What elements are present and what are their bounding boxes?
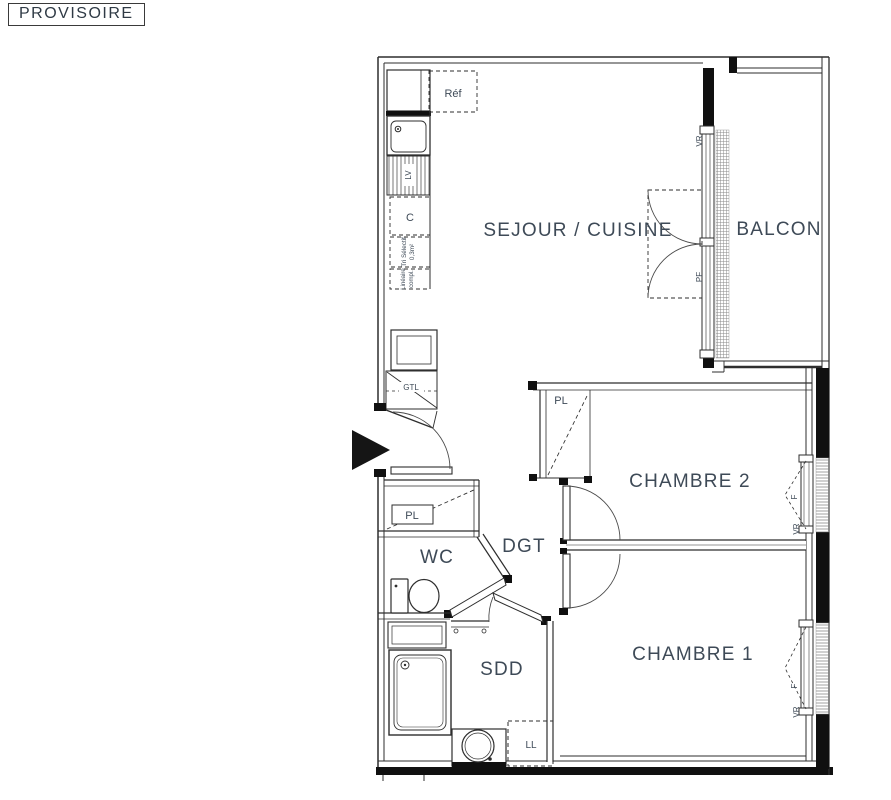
hallway-partitions: PL [528, 381, 812, 615]
toilet-tank [391, 579, 408, 613]
chambre2-door-leaf [563, 486, 570, 540]
chambre2-shutter-label: VR [792, 523, 801, 534]
entrance-arrow [352, 430, 390, 470]
washing-machine-label: LL [525, 740, 537, 751]
waste-sorting-label-2: 0,3m² [409, 244, 416, 260]
room-label-chambre1: CHAMBRE 1 [632, 644, 754, 665]
room-label-chambre2: CHAMBRE 2 [629, 471, 751, 492]
toilet-bowl [409, 580, 439, 613]
chambre2-window: F VR [785, 455, 813, 535]
room-labels: SEJOUR / CUISINE BALCON CHAMBRE 2 CHAMBR… [420, 219, 822, 680]
chambre1-shutter-label: VR [792, 706, 801, 717]
chambre1-door-leaf [563, 554, 570, 608]
room-label-dgt: DGT [502, 536, 546, 557]
sejour-shutter-label: VR [695, 135, 704, 146]
sejour-french-window: VR PF [648, 68, 729, 368]
room-label-wc: WC [420, 547, 454, 568]
entrance-door-leaf [391, 467, 452, 474]
cooker-label: C [406, 212, 414, 224]
sejour-french-door-label: PF [695, 272, 704, 282]
linear-label-1: Linéaire [401, 268, 407, 290]
entry-area: GTL [352, 330, 452, 477]
dishwasher-label: LV [404, 170, 413, 180]
chambre1-window-label: F [790, 683, 799, 688]
floor-plan-canvas: PROVISOIRE [0, 0, 891, 800]
chambre1-window: F VR [785, 620, 813, 718]
kitchen-fixtures: LV C Tri Sélectif 0,3m² Linéaire compl. … [386, 70, 477, 290]
room-label-sdd: SDD [480, 659, 524, 680]
balcony-structure [712, 57, 829, 372]
floor-plan-svg: F VR F VR VR PF [0, 0, 891, 800]
chambre2-closet-label: PL [554, 395, 567, 407]
chambre2-window-label: F [790, 494, 799, 499]
gtl-label: GTL [403, 383, 419, 392]
room-label-balcon: BALCON [736, 219, 821, 240]
entry-closet-label: PL [405, 510, 418, 522]
linear-label-2: compl. [409, 270, 415, 288]
waste-sorting-label-1: Tri Sélectif [401, 237, 408, 267]
refrigerator-label: Réf [444, 88, 462, 100]
room-label-sejour: SEJOUR / CUISINE [483, 220, 672, 241]
sdd-door-leaf [493, 593, 543, 622]
